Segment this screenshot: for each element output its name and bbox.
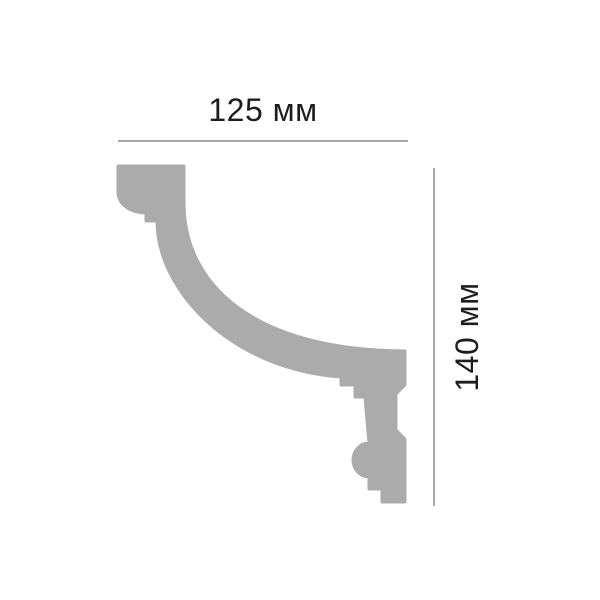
moulding-profile-silhouette — [118, 166, 405, 502]
width-dimension-label: 125 мм — [118, 92, 408, 128]
height-dimension-label: 140 мм — [449, 257, 485, 417]
profile-drawing — [0, 0, 600, 600]
diagram-canvas: 125 мм 140 мм — [0, 0, 600, 600]
